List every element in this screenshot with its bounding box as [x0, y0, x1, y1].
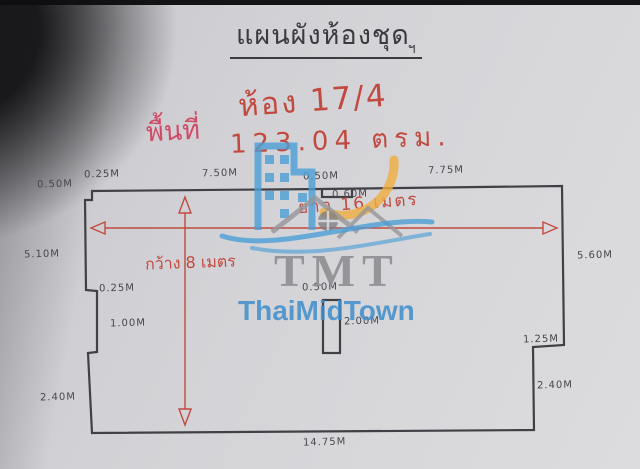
dim-left-lower: 2.40M — [40, 392, 76, 404]
dim-right-lower: 2.40M — [537, 380, 573, 392]
width-note: กว้าง 8 เมตร — [145, 253, 236, 272]
width-dimension-arrow-top — [179, 197, 191, 213]
watermark-monogram: TMT — [274, 248, 400, 294]
width-dimension-arrow-bottom — [179, 409, 191, 425]
dim-top-left-height: 0.50M — [37, 179, 73, 191]
dim-left-upper: 5.10M — [24, 249, 60, 261]
watermark-brand: ThaiMidTown — [238, 297, 415, 325]
dim-top-edge-left: 7.50M — [202, 168, 238, 180]
dim-bottom-edge: 14.75M — [303, 436, 347, 448]
dim-top-left-step: 0.25M — [84, 169, 120, 181]
scanned-floor-plan-page: แผนผังห้องชุดฯ 0.50M 0.25M 7.50M 0.50M 0… — [0, 0, 640, 469]
dim-top-edge-right: 7.75M — [428, 165, 464, 177]
dim-right-upper: 5.60M — [577, 250, 613, 262]
dim-left-middle: 1.00M — [110, 318, 146, 330]
dim-left-step: 0.25M — [99, 283, 135, 295]
length-dimension-arrow-left — [91, 222, 105, 234]
length-dimension-arrow-right — [543, 222, 557, 234]
dim-right-step: 1.25M — [523, 334, 559, 346]
area-label-note: พื้นที่ — [145, 117, 200, 147]
